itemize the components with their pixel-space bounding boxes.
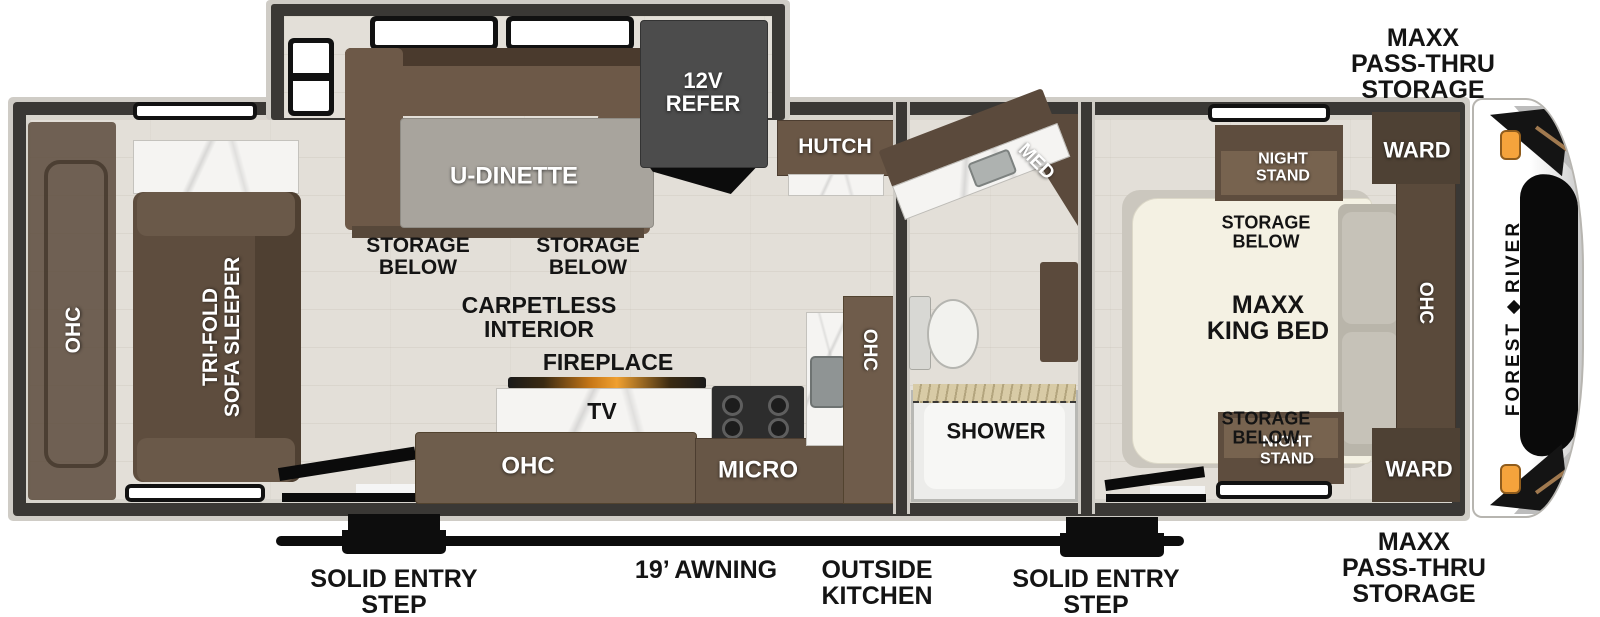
toilet-bowl bbox=[927, 299, 979, 369]
awning-line bbox=[276, 536, 1184, 546]
cap-marker-light-top bbox=[1500, 130, 1521, 160]
tv-label: TV bbox=[587, 400, 616, 424]
kitchen-ohc-label: OHC bbox=[859, 329, 879, 371]
rear-ohc-label: OHC bbox=[63, 307, 85, 354]
entertainment-ohc-cabinet bbox=[415, 432, 697, 504]
front-cap-brand: FOREST RIVER bbox=[1496, 186, 1532, 450]
entertainment-ohc-label: OHC bbox=[501, 455, 554, 480]
wardrobe-bottom-label: WARD bbox=[1385, 459, 1452, 482]
bed-storage-bottom-label: STORAGE BELOW bbox=[1222, 409, 1311, 446]
sofa-counter bbox=[133, 140, 299, 194]
brand-word-second: RIVER bbox=[1503, 220, 1525, 293]
slideout-side-window-icon bbox=[288, 38, 334, 116]
entry-step-right-label: SOLID ENTRY STEP bbox=[1012, 566, 1179, 617]
night-stand-top-label: NIGHT STAND bbox=[1256, 151, 1310, 184]
cap-marker-light-bottom bbox=[1500, 464, 1521, 494]
shower-label: SHOWER bbox=[947, 421, 1046, 444]
entry-door-frame bbox=[282, 493, 418, 502]
kitchen-ohc-cabinet bbox=[843, 296, 897, 504]
slideout-window-icon bbox=[506, 16, 634, 50]
floorplan-stage: U-DINETTE 12V REFER HUTCH TRI-FOLD SOFA … bbox=[0, 0, 1600, 617]
bed-pillows bbox=[1338, 204, 1404, 456]
bathroom-side-cabinet bbox=[1040, 262, 1078, 362]
pass-thru-storage-bottom-label: MAXX PASS-THRU STORAGE bbox=[1342, 529, 1486, 607]
bathroom-wall-right bbox=[1078, 102, 1095, 514]
sofa-label: TRI-FOLD SOFA SLEEPER bbox=[200, 257, 244, 417]
refrigerator-label: 12V REFER bbox=[666, 70, 741, 116]
entry-door-threshold bbox=[356, 484, 416, 493]
king-bed-label: MAXX KING BED bbox=[1207, 292, 1329, 344]
bed-storage-top-label: STORAGE BELOW bbox=[1222, 213, 1311, 250]
fireplace-label: FIREPLACE bbox=[543, 351, 673, 375]
shower-accordion-door bbox=[913, 384, 1076, 403]
wardrobe-top-label: WARD bbox=[1383, 140, 1450, 163]
microwave-label: MICRO bbox=[718, 459, 798, 484]
pass-thru-storage-top-label: MAXX PASS-THRU STORAGE bbox=[1351, 25, 1495, 103]
forest-river-logo-icon bbox=[1507, 300, 1521, 314]
entry-door-2-threshold bbox=[1150, 486, 1205, 494]
dinette-storage-left-label: STORAGE BELOW bbox=[366, 235, 469, 279]
hutch-label: HUTCH bbox=[798, 136, 872, 158]
rear-top-window-icon bbox=[133, 102, 257, 120]
bedroom-bottom-window-icon bbox=[1216, 481, 1332, 499]
carpetless-label: CARPETLESS INTERIOR bbox=[462, 294, 617, 342]
outside-kitchen-label: OUTSIDE KITCHEN bbox=[821, 557, 932, 609]
bed-ohc-label: OHC bbox=[1415, 282, 1435, 324]
brand-word-first: FOREST bbox=[1503, 321, 1525, 416]
hutch-counter bbox=[788, 174, 884, 196]
bedroom-top-window-icon bbox=[1208, 104, 1330, 122]
dinette-bench-left bbox=[345, 48, 403, 230]
awning-label: 19’ AWNING bbox=[635, 557, 777, 583]
front-cap: FOREST RIVER bbox=[1472, 98, 1584, 518]
rear-bottom-window-icon bbox=[125, 484, 265, 502]
entry-door-2-frame bbox=[1106, 494, 1206, 502]
kitchen-sink bbox=[810, 356, 846, 408]
slideout-window-icon bbox=[370, 16, 498, 50]
shower-pan bbox=[911, 390, 1078, 502]
entry-step-left-label: SOLID ENTRY STEP bbox=[310, 566, 477, 617]
u-dinette-label: U-DINETTE bbox=[450, 165, 578, 190]
cooktop bbox=[712, 386, 804, 442]
dinette-storage-right-label: STORAGE BELOW bbox=[536, 235, 639, 279]
